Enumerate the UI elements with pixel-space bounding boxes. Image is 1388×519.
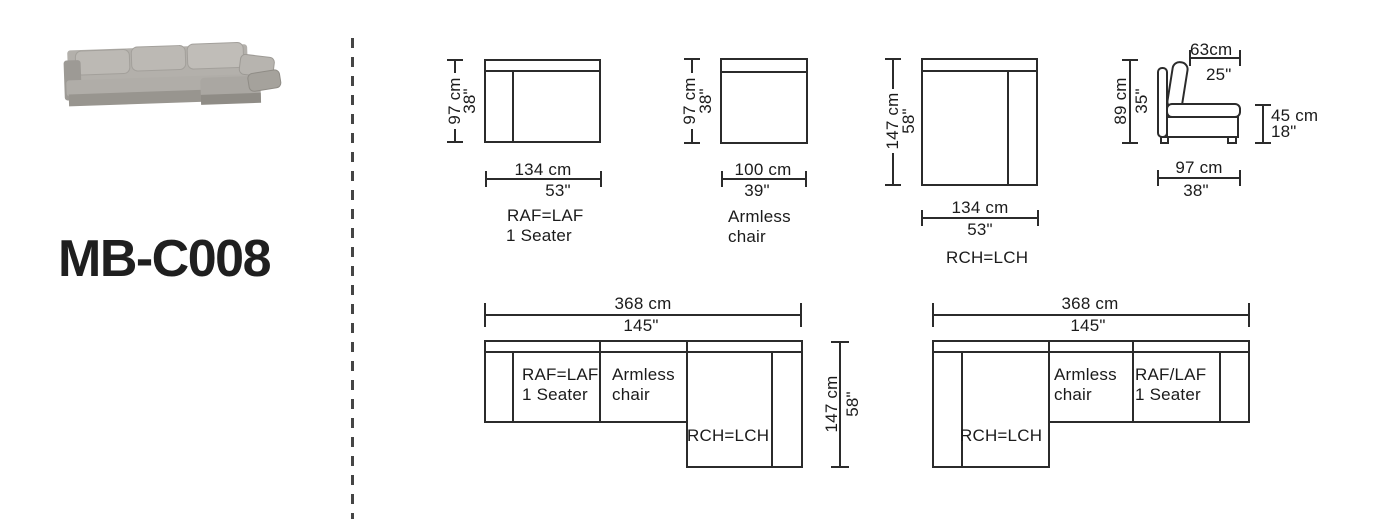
side-back-depth-cm: 63cm — [1190, 40, 1232, 60]
layout-left-section2-line2: chair — [612, 385, 650, 405]
layout-right-section3-line2: 1 Seater — [1135, 385, 1201, 405]
layout-right-section2-line1: Armless — [1054, 365, 1117, 385]
side-back-depth-in: 25" — [1206, 65, 1232, 85]
side-total-depth-cm: 97 cm — [1159, 158, 1239, 178]
side-total-depth-in: 38" — [1166, 181, 1226, 201]
layout-right-section1: RCH=LCH — [960, 426, 1042, 446]
chaise-width-cm: 134 cm — [935, 198, 1025, 218]
model-name: MB-C008 — [58, 229, 270, 289]
armless-name-line1: Armless — [728, 207, 791, 227]
side-height-in: 35" — [1134, 83, 1150, 119]
layout-left-section1-line1: RAF=LAF — [522, 365, 599, 385]
sofa-spec-sheet: MB-C008 97 cm 38" 134 cm 53" RAF=LAF 1 S… — [0, 0, 1388, 519]
armless-name-line2: chair — [728, 227, 766, 247]
sofa-photo — [52, 33, 282, 113]
layout-left-depth-in: 58" — [845, 386, 861, 422]
armless-width-cm: 100 cm — [718, 160, 808, 180]
side-seat-height-in: 18" — [1271, 122, 1297, 142]
armless-depth-in: 38" — [698, 83, 714, 119]
side-height-cm: 89 cm — [1113, 73, 1129, 129]
layout-left-section1-line2: 1 Seater — [522, 385, 588, 405]
chaise-name: RCH=LCH — [946, 248, 1028, 268]
one-seater-depth-in: 38" — [462, 83, 478, 119]
layout-left-width-cm: 368 cm — [593, 294, 693, 314]
chaise-depth-in: 58" — [901, 103, 917, 139]
layout-left-width-in: 145" — [611, 316, 671, 336]
one-seater-width-in: 53" — [528, 181, 588, 201]
chaise-width-in: 53" — [950, 220, 1010, 240]
one-seater-width-cm: 134 cm — [498, 160, 588, 180]
layout-left-section3: RCH=LCH — [687, 426, 769, 446]
layout-right-width-cm: 368 cm — [1040, 294, 1140, 314]
layout-right-section2-line2: chair — [1054, 385, 1092, 405]
one-seater-name-line2: 1 Seater — [506, 226, 572, 246]
one-seater-name-line1: RAF=LAF — [507, 206, 584, 226]
layout-right-width-in: 145" — [1058, 316, 1118, 336]
dashed-divider — [351, 38, 354, 519]
armless-width-in: 39" — [727, 181, 787, 201]
layout-left-depth-cm: 147 cm — [824, 372, 840, 436]
layout-right-section3-line1: RAF/LAF — [1135, 365, 1206, 385]
layout-left-section2-line1: Armless — [612, 365, 675, 385]
